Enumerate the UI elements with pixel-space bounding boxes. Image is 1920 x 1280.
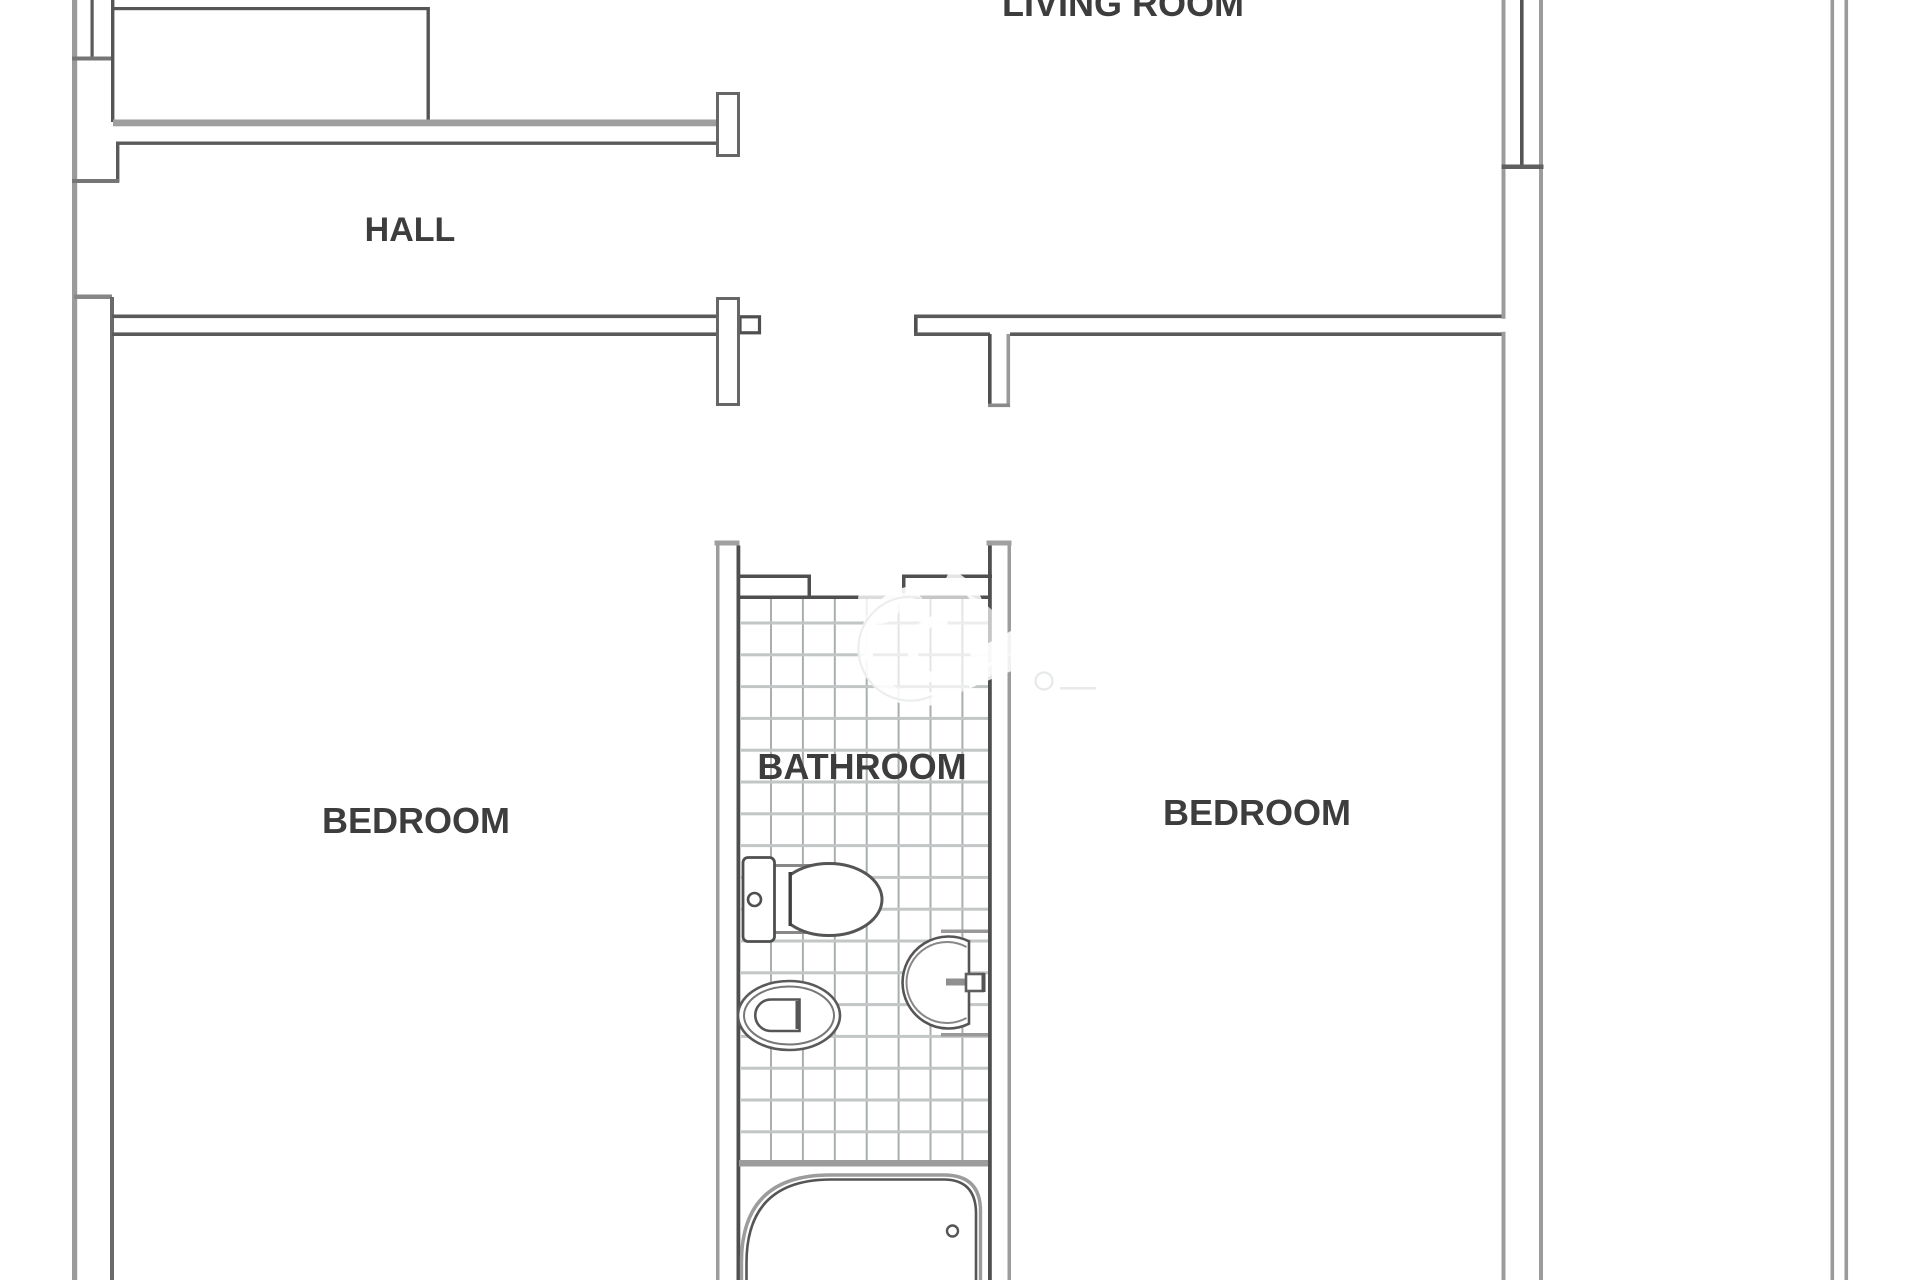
svg-text:LIVING ROOM: LIVING ROOM bbox=[1002, 0, 1244, 24]
svg-text:HALL: HALL bbox=[365, 211, 456, 249]
svg-text:BATHROOM: BATHROOM bbox=[757, 746, 966, 787]
svg-text:BEDROOM: BEDROOM bbox=[322, 800, 510, 841]
svg-text:BEDROOM: BEDROOM bbox=[1163, 792, 1351, 833]
